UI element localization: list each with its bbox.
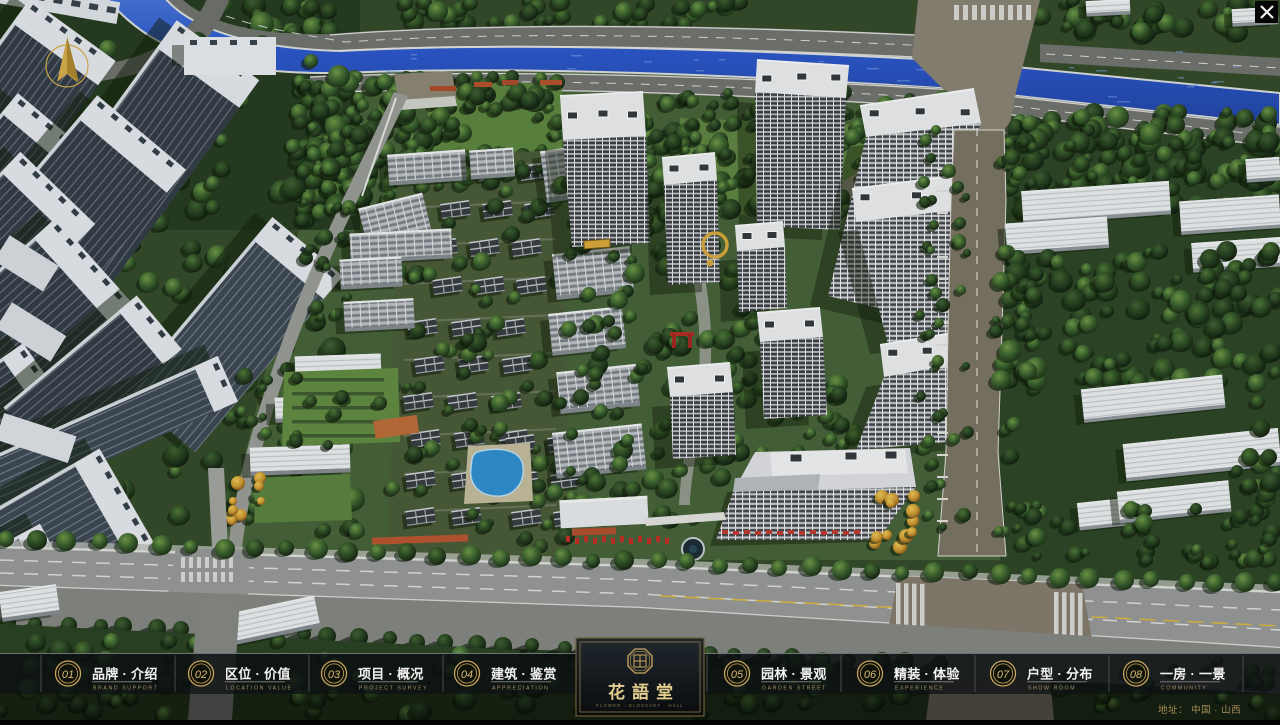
svg-text:品牌 · 介绍: 品牌 · 介绍	[92, 667, 158, 682]
svg-text:COMMUNITY: COMMUNITY	[1161, 686, 1207, 692]
svg-text:04: 04	[461, 669, 473, 681]
svg-text:01: 01	[62, 669, 74, 681]
svg-text:园林 · 景观: 园林 · 景观	[761, 667, 827, 682]
svg-text:SHOW ROOM: SHOW ROOM	[1028, 686, 1076, 692]
svg-text:GARDEN STREET: GARDEN STREET	[762, 686, 827, 692]
svg-text:08: 08	[1130, 669, 1143, 681]
svg-text:EXPERIENCE: EXPERIENCE	[895, 686, 944, 692]
svg-text:FLOWER · GLOSSARY · HALL: FLOWER · GLOSSARY · HALL	[596, 703, 684, 708]
svg-text:APPRECIATION: APPRECIATION	[492, 686, 549, 692]
svg-text:05: 05	[731, 669, 744, 681]
svg-text:02: 02	[195, 669, 207, 681]
svg-text:07: 07	[997, 669, 1010, 681]
svg-text:BRAND SUPPORT: BRAND SUPPORT	[93, 686, 158, 692]
svg-text:03: 03	[328, 669, 341, 681]
svg-text:户型 · 分布: 户型 · 分布	[1027, 667, 1093, 682]
svg-text:LOCATION VALUE: LOCATION VALUE	[226, 686, 293, 692]
svg-text:建筑 · 鉴赏: 建筑 · 鉴赏	[491, 667, 557, 682]
svg-text:一房 · 一景: 一房 · 一景	[1160, 667, 1226, 682]
svg-text:精装 · 体验: 精装 · 体验	[894, 667, 960, 682]
svg-text:项目 · 概况: 项目 · 概况	[358, 667, 424, 682]
svg-text:06: 06	[864, 669, 877, 681]
svg-text:区位 · 价值: 区位 · 价值	[225, 667, 291, 682]
svg-text:地址： 中国 · 山西: 地址： 中国 · 山西	[1158, 704, 1241, 716]
svg-text:PROJECT SURVEY: PROJECT SURVEY	[359, 686, 428, 692]
svg-text:花語堂: 花語堂	[608, 682, 680, 702]
